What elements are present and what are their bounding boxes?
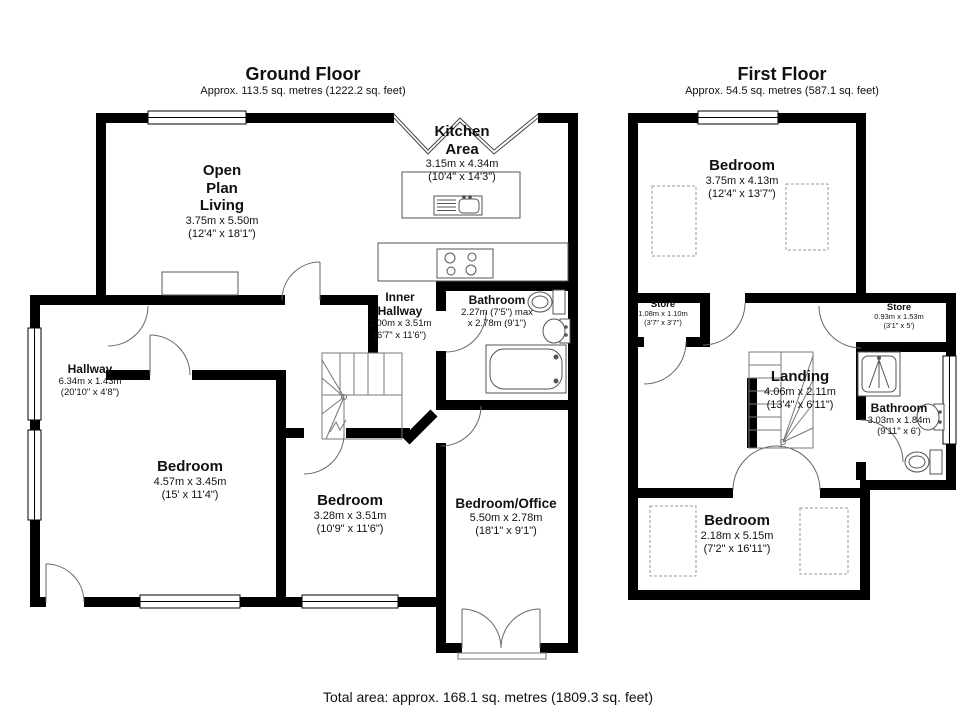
hob-icon: [437, 249, 493, 278]
window: [302, 595, 398, 608]
floor-subtitle: Approx. 54.5 sq. metres (587.1 sq. feet): [685, 85, 879, 98]
ground-floor-title: Ground Floor Approx. 113.5 sq. metres (1…: [200, 64, 405, 98]
window: [148, 111, 246, 124]
toilet-icon: [905, 450, 942, 474]
front-door: [46, 564, 84, 602]
room-label-store-right: Store 0.93m x 1.53m (3'1" x 5'): [874, 303, 924, 330]
floorplan-drawing: [0, 0, 980, 712]
door-arc: [282, 262, 320, 300]
first-floor-title: First Floor Approx. 54.5 sq. metres (587…: [685, 64, 879, 98]
floorplan: Ground Floor Approx. 113.5 sq. metres (1…: [0, 0, 980, 712]
room-label-landing: Landing 4.06m x 2.11m (13'4" x 6'11"): [764, 368, 836, 412]
sideboard-icon: [162, 272, 238, 295]
floor-subtitle: Approx. 113.5 sq. metres (1222.2 sq. fee…: [200, 85, 405, 98]
shower-icon: [858, 352, 900, 396]
window: [943, 356, 956, 444]
door-arc: [108, 306, 148, 346]
basin-icon: [543, 319, 570, 343]
window: [28, 430, 41, 520]
room-label-kitchen-area: Kitchen Area 3.15m x 4.34m (10'4" x 14'3…: [426, 123, 499, 184]
total-area-note: Total area: approx. 168.1 sq. metres (18…: [323, 689, 653, 706]
floor-title: First Floor: [685, 64, 879, 85]
window: [698, 111, 778, 124]
room-label-open-plan-living: Open Plan Living 3.75m x 5.50m (12'4" x …: [186, 162, 259, 241]
window: [28, 328, 41, 420]
room-label-bedroom-office: Bedroom/Office 5.50m x 2.78m (18'1" x 9'…: [455, 496, 556, 538]
room-label-store-left: Store 1.08m x 1.10m (3'7" x 3'7"): [638, 300, 688, 327]
room-label-inner-hallway: Inner Hallway 2.00m x 3.51m (6'7" x 11'6…: [369, 290, 432, 341]
room-label-hallway: Hallway 6.34m x 1.43m (20'10" x 4'8"): [59, 362, 122, 399]
room-label-bathroom-gf: Bathroom 2.27m (7'5") max x 2.78m (9'1"): [461, 293, 533, 330]
toilet-icon: [528, 290, 565, 314]
floor-title: Ground Floor: [200, 64, 405, 85]
bath-icon: [486, 345, 566, 393]
door-arc: [304, 434, 344, 474]
door-arc: [733, 446, 820, 490]
door-arc: [441, 406, 481, 446]
room-label-bedroom2: Bedroom 3.28m x 3.51m (10'9" x 11'6"): [314, 492, 387, 536]
door-arc: [819, 306, 861, 348]
window: [140, 595, 240, 608]
room-label-bedroom-front: Bedroom 3.75m x 4.13m (12'4" x 13'7"): [706, 157, 779, 201]
french-doors: [458, 609, 546, 659]
door-arc: [150, 335, 190, 375]
door-arc: [644, 342, 686, 384]
stairs-icon: [322, 353, 402, 439]
room-label-bedroom-back: Bedroom 2.18m x 5.15m (7'2" x 16'11"): [701, 512, 774, 556]
room-label-bathroom-ff: Bathroom 3.03m x 1.84m (9'11" x 6'): [868, 401, 931, 438]
room-label-bedroom1: Bedroom 4.57m x 3.45m (15' x 11'4"): [154, 458, 227, 502]
